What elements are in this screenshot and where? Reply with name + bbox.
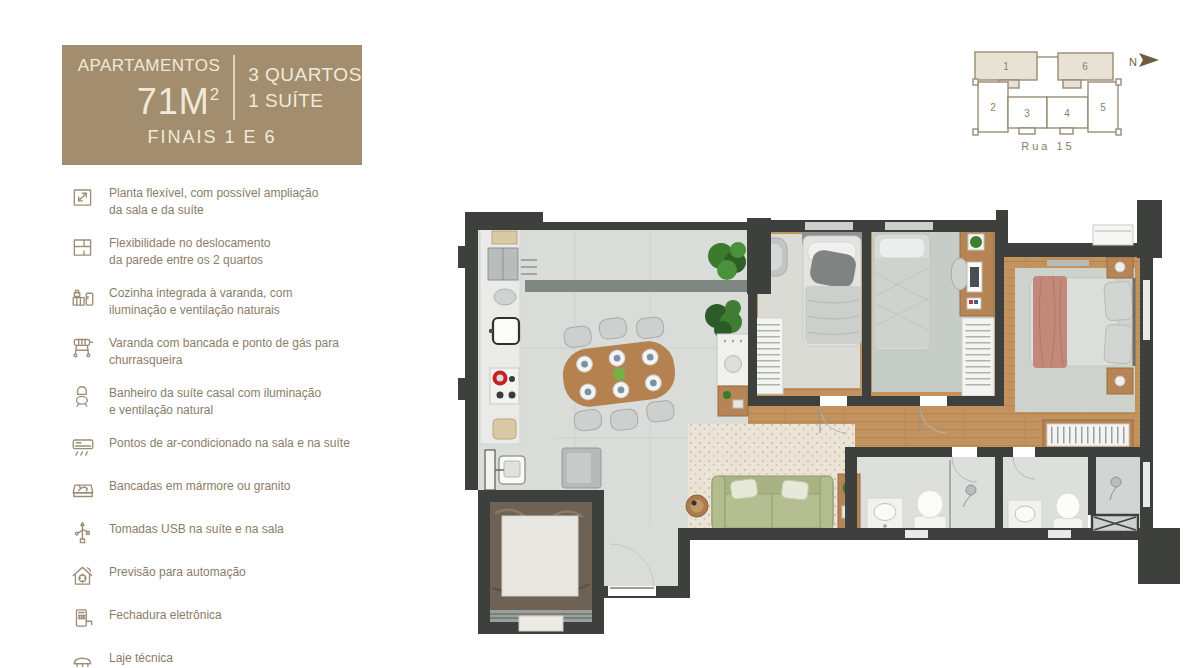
north-arrow-icon: N (1129, 53, 1159, 68)
key-plan-outline (973, 52, 1121, 135)
sideboard (717, 334, 749, 416)
wall-flex-icon (70, 233, 96, 260)
bedroom1-wardrobe (753, 318, 783, 394)
balcony-counter (525, 280, 747, 292)
feature-usb: Tomadas USB na suíte e na sala (70, 519, 410, 546)
sofa-seat-left (725, 494, 772, 528)
suite-ac-unit (1093, 225, 1133, 245)
feature-wall-flex: Flexibilidade no deslocamentoda parede e… (70, 233, 410, 268)
area-exponent: 2 (210, 85, 220, 104)
feature-countertop: Bancadas em mármore ou granito (70, 476, 410, 503)
sink-faucet (489, 329, 493, 333)
ac-unit-icon (70, 433, 96, 460)
bed-single-2 (874, 234, 930, 350)
feature-smart-lock: Fechadura eletrônica (70, 605, 410, 632)
kitchen-sink (493, 318, 519, 344)
key-plan: 1 2 3 4 5 6 Rua 15 N (963, 45, 1173, 160)
kitchen-canister (493, 419, 516, 439)
plan-header: APARTAMENTOS 71M2 3 QUARTOS 1 SUÍTE FINA… (62, 45, 362, 165)
toilet-icon (70, 383, 96, 410)
key-plan-unit-6-tab (1063, 80, 1081, 88)
sideboard-tray (725, 356, 742, 373)
bed-double (1030, 276, 1134, 368)
header-title: APARTAMENTOS (62, 55, 220, 77)
sofa-armrest-right (820, 476, 833, 530)
feature-suite-bathroom: Banheiro da suíte casal com iluminaçãoe … (70, 383, 410, 418)
bedroom2-window (885, 222, 933, 230)
entry-doormat (519, 616, 563, 631)
dining-set (557, 312, 682, 437)
grill-bench (492, 231, 517, 244)
unit-2-label: 2 (990, 102, 996, 113)
feature-kitchen: Cozinha integrada à varanda, comiluminaç… (70, 283, 410, 318)
unit-6-label: 6 (1082, 61, 1088, 72)
sofa-armrest-left (712, 476, 725, 530)
unit-1-label: 1 (1003, 61, 1009, 72)
usb-icon (70, 519, 96, 546)
grill-icon (70, 333, 96, 360)
bedroom1-window (805, 222, 853, 230)
header-rooms: 3 QUARTOS (248, 63, 362, 87)
area-value: 71M (137, 81, 210, 122)
kitchen (480, 226, 520, 444)
living-room (686, 424, 860, 532)
bed-pillow-top (1104, 281, 1134, 321)
technical-slab-icon (70, 648, 96, 668)
floor-plan (455, 198, 1190, 638)
svg-text:N: N (1129, 56, 1137, 68)
sofa-pillow-left (730, 478, 758, 499)
desk-plant (970, 236, 982, 248)
header-area: 71M2 (62, 77, 220, 120)
header-suite: 1 SUÍTE (248, 89, 362, 113)
unit-5-label: 5 (1100, 102, 1106, 113)
toilet-2 (1053, 493, 1083, 532)
bathroom1-vent (905, 530, 928, 538)
laundry-door-panel (485, 450, 495, 490)
feature-flexible-plan: Planta flexível, com possível ampliaçãod… (70, 183, 410, 218)
suite-closet (1043, 420, 1133, 450)
sofa-pillow-right (781, 480, 809, 501)
bed2-pillow (879, 238, 925, 258)
desk-mirror (951, 258, 969, 290)
feature-automation: Previsão para automação (70, 562, 410, 589)
street-label: Rua 15 (1021, 140, 1074, 152)
header-finals: FINAIS 1 E 6 (62, 127, 362, 148)
features-list: Planta flexível, com possível ampliaçãod… (70, 183, 410, 668)
feature-grill: Varanda com bancada e ponto de gás parac… (70, 333, 410, 368)
unit-4-label: 4 (1064, 108, 1070, 119)
shower-head-2 (1111, 477, 1121, 487)
technical-slab-box (1092, 515, 1138, 532)
bathroom2-vent (1048, 530, 1071, 538)
bed1-blanket (805, 286, 861, 344)
apartment-plan-page: APARTAMENTOS 71M2 3 QUARTOS 1 SUÍTE FINA… (0, 0, 1200, 668)
suite-side-window (1143, 280, 1150, 340)
expand-plan-icon (70, 183, 96, 210)
sofa (712, 476, 833, 530)
bed2-quilt (875, 258, 929, 348)
suite-shelf (1047, 260, 1089, 266)
bed-pillow-bottom (1104, 324, 1134, 364)
home-automation-icon (70, 562, 96, 589)
smart-lock-icon (70, 605, 96, 632)
feature-technical-slab: Laje técnica (70, 648, 410, 668)
bedroom-2 (872, 228, 994, 396)
shower-head-1 (966, 485, 976, 495)
kitchen-icon (70, 283, 96, 310)
feature-ac: Pontos de ar-condicionado na sala e na s… (70, 433, 410, 460)
bed-single-1 (802, 232, 862, 346)
shower-window (1143, 462, 1150, 507)
hall-mat (502, 516, 578, 596)
kitchen-basin (494, 289, 516, 305)
toilet-1 (914, 490, 946, 531)
countertop-icon (70, 476, 96, 503)
elevator-hall (478, 490, 604, 634)
unit-3-label: 3 (1024, 108, 1030, 119)
